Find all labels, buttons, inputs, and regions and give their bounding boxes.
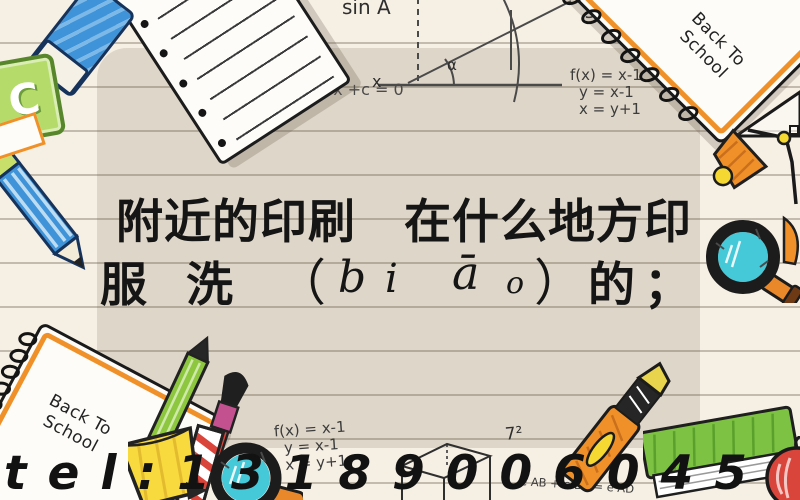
blue-pencil-icon <box>0 143 95 313</box>
semicolon: ； <box>644 246 691 315</box>
seven-squared-label: 7² <box>504 423 523 444</box>
open-paren: （ <box>276 243 326 315</box>
headline-line1: 附近的印刷 在什么地方印 <box>116 183 692 252</box>
pinyin-i: i <box>385 256 398 302</box>
magnifier-right-icon <box>702 215 800 303</box>
formula-line: y = x-1 <box>570 84 642 101</box>
alpha-label: α <box>447 56 457 74</box>
pinyin-a-macron: ā <box>452 246 479 300</box>
formula-line: x = y+1 <box>570 101 642 118</box>
poster: x α sin A ax2 + bx +c = 0 f(x) = x-1 y =… <box>0 0 800 500</box>
pinyin-b: b <box>338 252 366 303</box>
headline-char: 洗 <box>186 246 233 315</box>
sin-a-label: sin A <box>342 0 391 19</box>
headline-line1-part2: 在什么地方印 <box>404 183 692 252</box>
headline-char: 的 <box>588 246 635 315</box>
headline-char: 服 <box>100 246 147 315</box>
headline-line1-part1: 附近的印刷 <box>116 183 356 252</box>
close-paren: ） <box>534 243 584 315</box>
fx-formulas-right: f(x) = x-1 y = x-1 x = y+1 <box>570 67 642 118</box>
phone-number: tel:13189006045 <box>4 446 798 500</box>
pinyin-o: o <box>506 266 524 301</box>
